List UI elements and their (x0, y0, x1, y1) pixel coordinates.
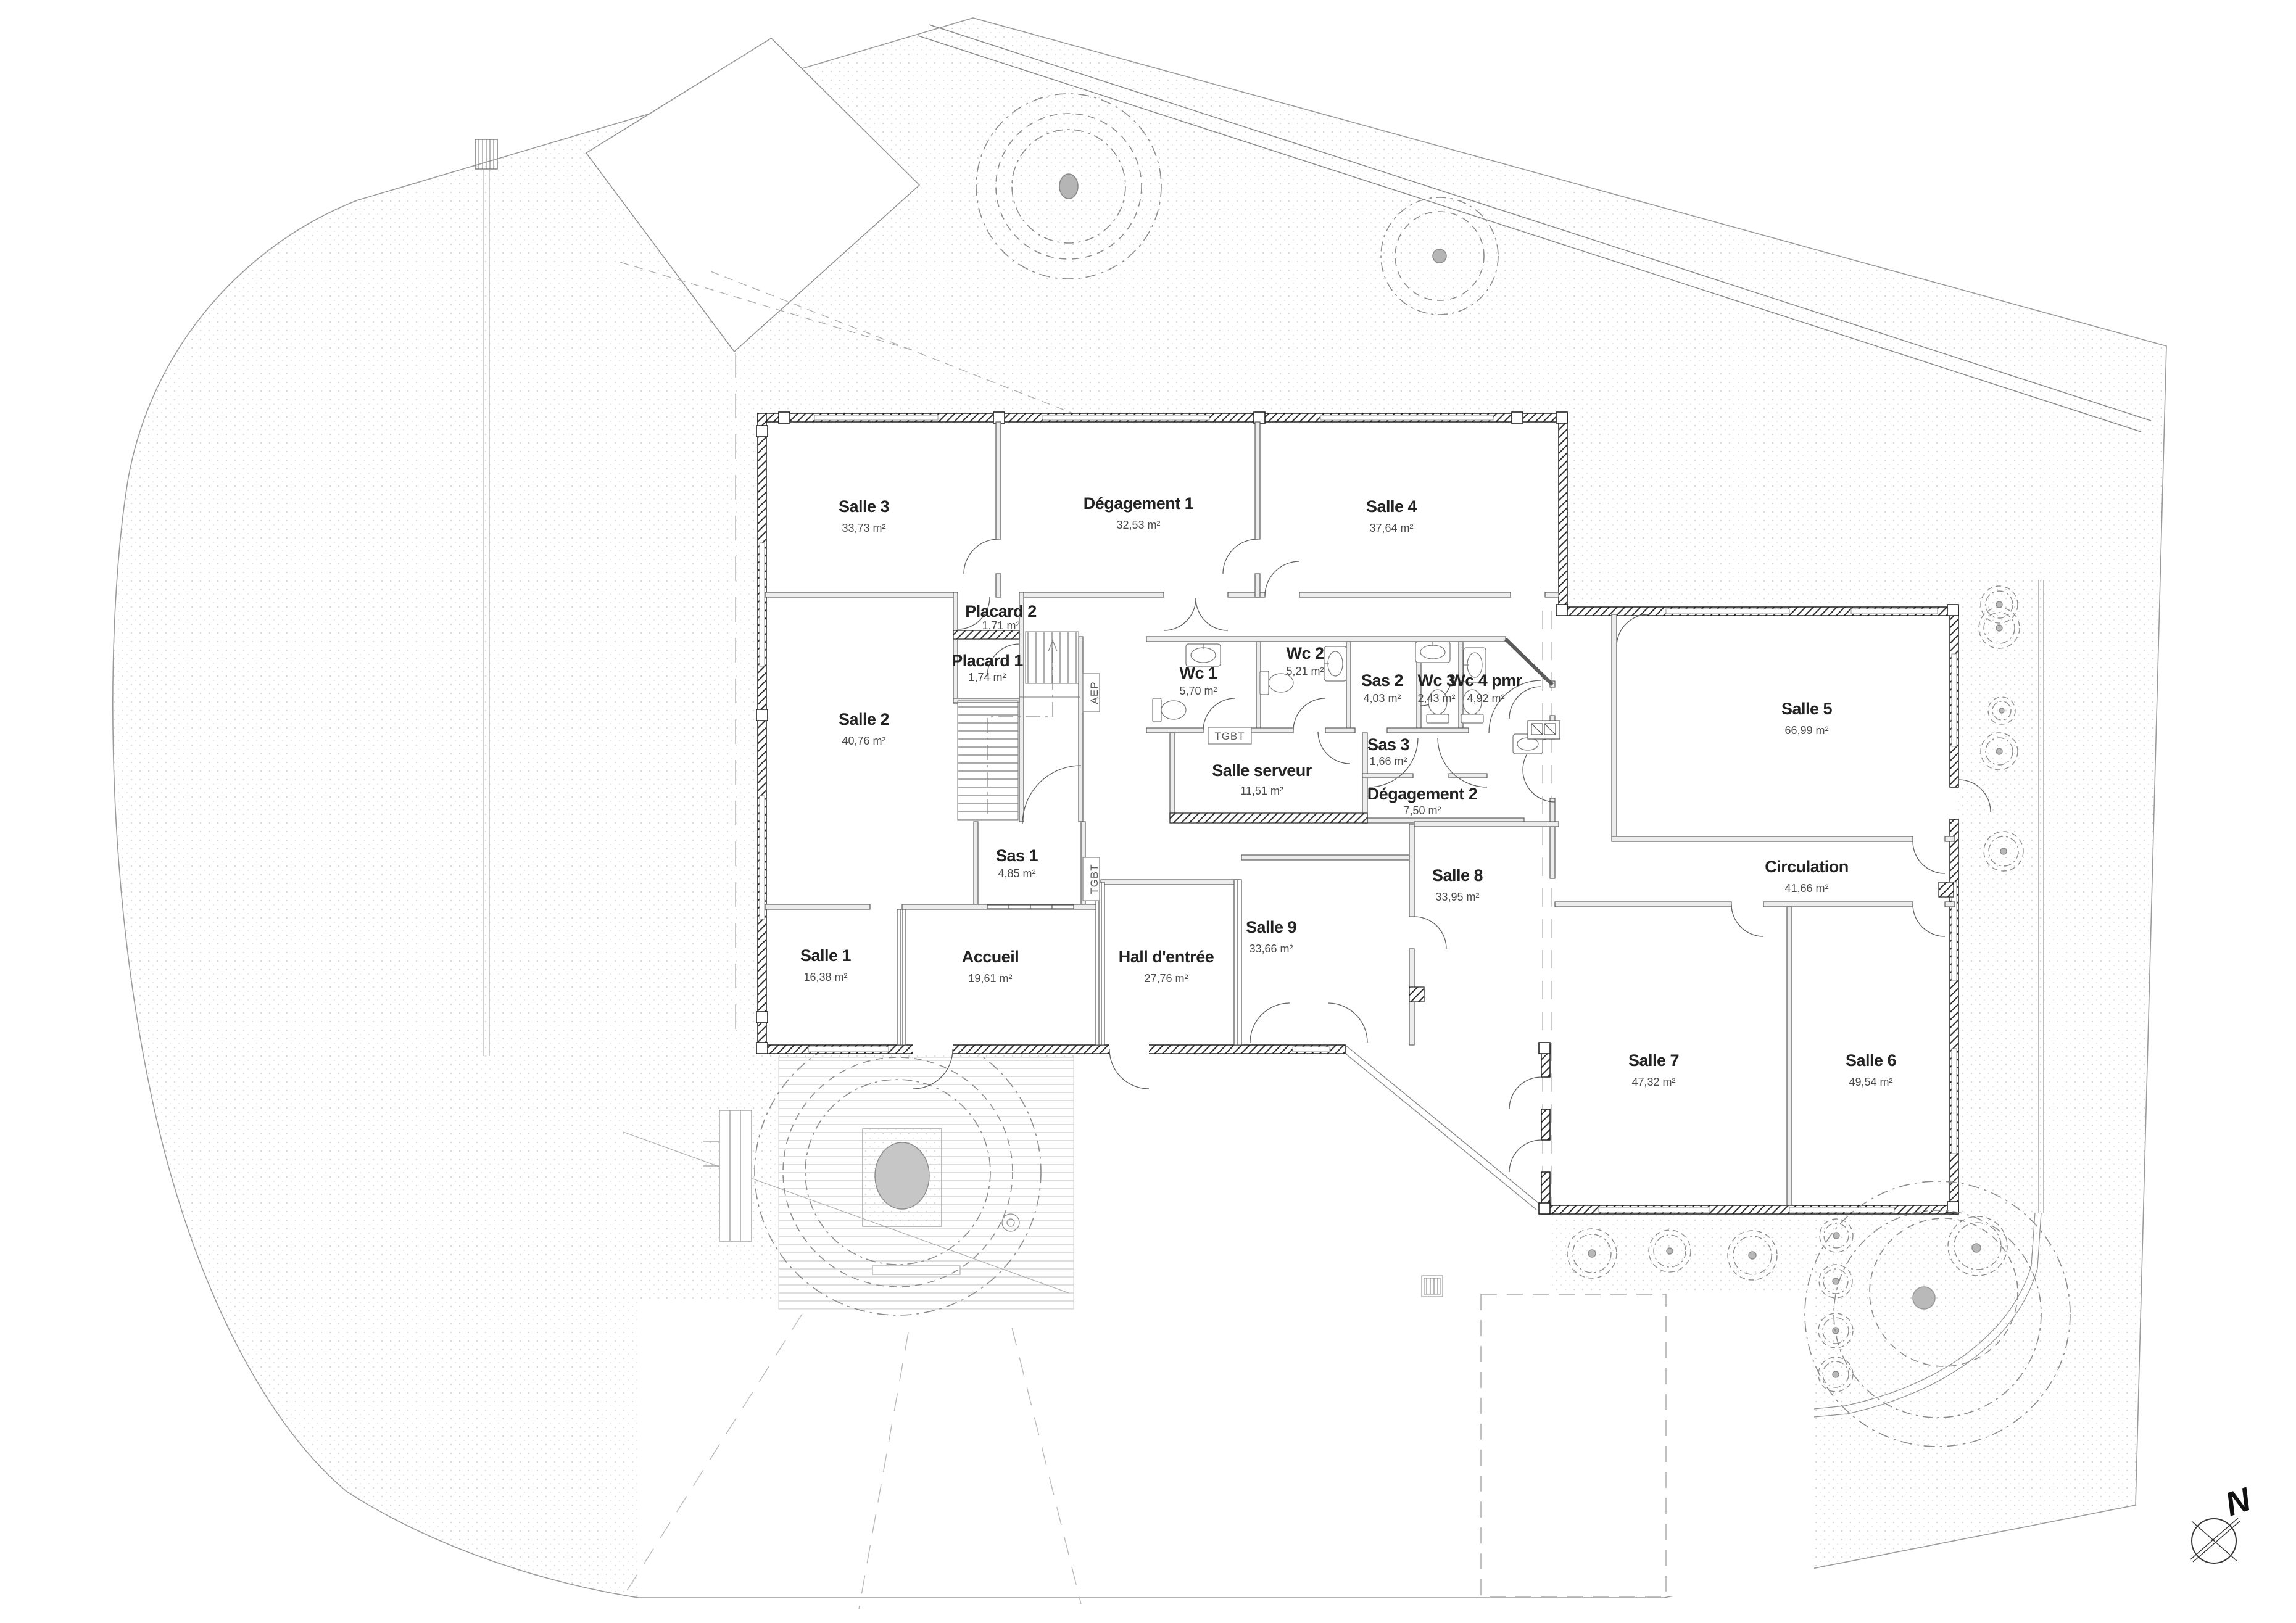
sink (1186, 644, 1221, 666)
room-area-placard-1: 1,74 m² (968, 671, 1006, 683)
floor-wing (1546, 607, 1957, 1210)
room-label-salle-3: Salle 3 (839, 497, 890, 516)
floor-plan-svg: TGBT TGBT AEP (0, 0, 2296, 1623)
deck-step (872, 1266, 960, 1274)
room-label-degagement-1: Dégagement 1 (1084, 494, 1194, 513)
room-area-sas-1: 4,85 m² (998, 867, 1035, 880)
room-label-sas-2: Sas 2 (1361, 671, 1403, 690)
room-label-circulation: Circulation (1765, 857, 1849, 876)
room-label-salle-9: Salle 9 (1246, 918, 1297, 936)
tgbt-vertical-label: TGBT (1088, 864, 1100, 894)
wall-wing-west (1541, 1172, 1550, 1205)
room-label-salle-serveur: Salle serveur (1212, 761, 1312, 780)
room-label-salle-7: Salle 7 (1628, 1051, 1679, 1070)
room-label-sas-3: Sas 3 (1367, 735, 1410, 754)
room-area-salle-8: 33,95 m² (1435, 891, 1479, 903)
room-area-salle-3: 33,73 m² (842, 522, 885, 534)
room-label-degagement-2: Dégagement 2 (1367, 785, 1478, 803)
room-area-degagement-2: 7,50 m² (1403, 804, 1441, 817)
room-label-sas-1: Sas 1 (996, 846, 1038, 865)
room-label-salle-8: Salle 8 (1432, 866, 1483, 885)
room-label-wc-2: Wc 2 (1286, 644, 1324, 663)
utility-pole (475, 139, 497, 169)
room-area-sas-3: 1,66 m² (1369, 755, 1407, 767)
room-area-sas-2: 4,03 m² (1363, 692, 1401, 704)
room-area-salle-4: 37,64 m² (1369, 522, 1413, 534)
room-label-accueil: Accueil (962, 948, 1019, 966)
sink (1415, 642, 1450, 663)
aep-label: AEP (1088, 681, 1100, 704)
wall-east-main (1559, 413, 1567, 616)
sink (1324, 646, 1346, 681)
east-planting-strip (1961, 589, 2036, 1211)
room-label-salle-1: Salle 1 (800, 946, 852, 965)
room-area-wc-3: 2,43 m² (1417, 692, 1455, 704)
room-area-salle-2: 40,76 m² (842, 735, 885, 747)
room-label-salle-2: Salle 2 (839, 710, 889, 729)
room-area-salle-5: 66,99 m² (1784, 724, 1828, 737)
electrical-panel (1528, 721, 1560, 739)
north-arrow: N (2190, 1481, 2256, 1563)
room-area-placard-2: 1,71 m² (982, 619, 1019, 632)
tgbt-label: TGBT (1214, 730, 1245, 742)
white-ground (639, 1302, 1814, 1596)
tree-trunk (875, 1142, 929, 1209)
grate (1424, 1278, 1440, 1294)
room-label-wc-4-pmr: Wc 4 pmr (1449, 671, 1523, 690)
wall-wing-west (1541, 1109, 1550, 1140)
room-area-wc-2: 5,21 m² (1286, 665, 1324, 677)
room-area-salle-6: 49,54 m² (1849, 1076, 1892, 1088)
room-label-salle-5: Salle 5 (1781, 700, 1833, 718)
room-area-salle-9: 33,66 m² (1249, 943, 1293, 955)
room-area-salle-1: 16,38 m² (803, 971, 847, 983)
room-label-hall-entree: Hall d'entrée (1119, 948, 1214, 966)
room-area-accueil: 19,61 m² (968, 972, 1012, 985)
room-area-salle-7: 47,32 m² (1631, 1076, 1675, 1088)
room-label-wc-1: Wc 1 (1179, 664, 1217, 682)
room-label-salle-4: Salle 4 (1366, 497, 1417, 516)
wall-west (758, 413, 766, 1054)
room-label-placard-1: Placard 1 (951, 651, 1023, 670)
room-area-circulation: 41,66 m² (1784, 882, 1828, 894)
north-label: N (2221, 1481, 2256, 1523)
room-label-placard-2: Placard 2 (965, 602, 1037, 621)
wall-wing-east (1950, 819, 1958, 1214)
room-area-salle-serveur: 11,51 m² (1240, 785, 1283, 797)
room-area-wc-1: 5,70 m² (1179, 685, 1217, 697)
room-area-degagement-1: 32,53 m² (1116, 519, 1160, 531)
room-label-salle-6: Salle 6 (1846, 1051, 1897, 1070)
room-area-hall-entree: 27,76 m² (1144, 972, 1188, 985)
room-area-wc-4-pmr: 4,92 m² (1467, 692, 1504, 704)
